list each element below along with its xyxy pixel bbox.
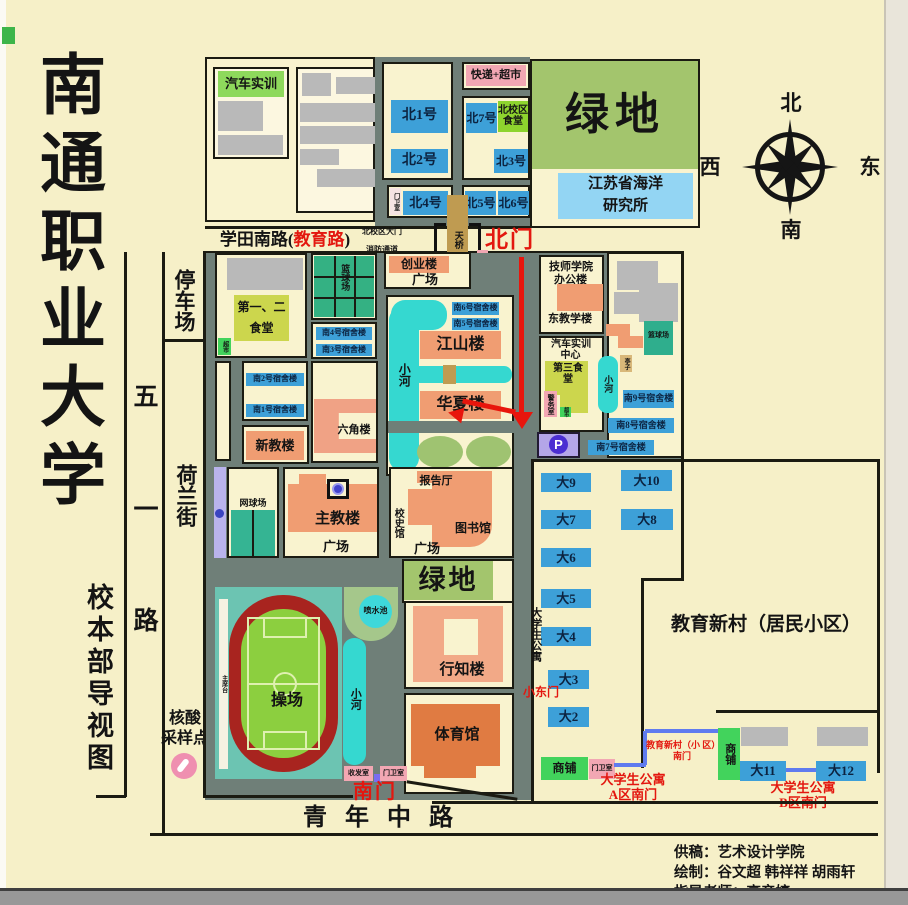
hexagon-label: 六角楼 xyxy=(333,424,375,438)
screenshot-edge-chip xyxy=(2,27,15,44)
gate-path xyxy=(645,729,719,733)
dorm-south-5: 南5号宿舍楼 xyxy=(452,318,499,330)
compass-north-label: 北 xyxy=(778,92,804,116)
apartment-d12: 大12 xyxy=(816,761,866,781)
canteen-1-2-label: 食堂 xyxy=(234,319,289,337)
covid-test-icon xyxy=(171,753,197,779)
apartment-d11: 大11 xyxy=(740,761,786,781)
gate-path xyxy=(785,768,818,772)
compass-icon xyxy=(744,121,836,213)
report-hall-label: 报告厅 xyxy=(414,476,458,488)
boundary xyxy=(681,251,684,581)
east-teaching-label: 东教学楼 xyxy=(543,313,597,326)
xincun-gate-text: 教育新村（小 区） xyxy=(646,740,718,751)
mail-room-label: 收发室 xyxy=(344,766,373,781)
north-gate-label: 北门 xyxy=(484,227,536,253)
dorm-south-7: 南7号宿舍楼 xyxy=(588,440,654,455)
canteen-3-label: 第三食堂 xyxy=(550,369,586,380)
boundary xyxy=(534,459,880,462)
school-name-calligraphy: 南通职业大学 xyxy=(26,50,114,570)
xuetian-road-text: 学田南路( xyxy=(220,231,294,249)
a-gate-label: 大学生公寓 A区南门 xyxy=(598,772,668,802)
parking-sign: P xyxy=(537,432,580,458)
xincun-gate-label: 教育新村（小 区） 南门 xyxy=(646,740,718,762)
gym-label: 体育馆 xyxy=(433,728,481,743)
apartment-d4: 大4 xyxy=(541,627,591,646)
pavilion-label: 亭子 xyxy=(620,355,632,372)
apartment-d6: 大6 xyxy=(541,548,591,567)
landmark-icon xyxy=(327,479,349,499)
building-footprint xyxy=(300,103,375,122)
boundary xyxy=(877,459,880,713)
divider xyxy=(96,795,126,798)
guard-room-label: 门卫室 xyxy=(390,188,401,215)
basketball-court-west-label: 篮球场 xyxy=(338,258,351,296)
campus-border xyxy=(205,795,353,798)
police-room-label: 警务室 xyxy=(544,391,557,417)
tennis-label: 网球场 xyxy=(233,498,273,509)
dorm-south-4: 南4号宿舍楼 xyxy=(316,327,372,340)
dorm-north-3: 北3号 xyxy=(494,149,528,173)
divider xyxy=(124,252,127,797)
tech-office-building xyxy=(557,284,603,311)
dorm-south-8: 南8号宿舍楼 xyxy=(608,418,674,433)
xincun-gate-text: 南门 xyxy=(646,751,718,762)
dorm-south-1: 南1号宿舍楼 xyxy=(246,404,304,417)
dorm-south-2: 南2号宿舍楼 xyxy=(246,373,304,386)
auto-training-label: 汽车实训 xyxy=(218,71,284,97)
parking-lot-label: 停车场 xyxy=(168,258,200,342)
wuyi-road-char: 路 xyxy=(132,608,160,636)
compass-west-label: 西 xyxy=(697,156,723,180)
helan-street-label: 荷兰街 xyxy=(170,437,202,553)
supermarket-label: 超市 xyxy=(560,407,571,417)
xuetian-road-label: 学田南路(教育路) xyxy=(206,229,364,251)
dot-icon xyxy=(215,509,224,518)
building-footprint xyxy=(606,324,630,336)
qingnian-road-label: 青年中路 xyxy=(292,806,482,832)
community-label: 教育新村（居民小区） xyxy=(668,612,864,638)
stage-label: 主席台 xyxy=(219,668,228,700)
b-gate-label: 大学生公寓 B区南门 xyxy=(766,780,840,810)
inner-road xyxy=(388,421,514,433)
building-footprint xyxy=(300,149,339,165)
apartment-d10: 大10 xyxy=(621,470,672,491)
road-line xyxy=(150,833,878,836)
small-east-gate-label: 小东门 xyxy=(520,686,562,699)
new-teaching-building: 新教楼 xyxy=(246,431,304,460)
dorm-south-6: 南6号宿舍楼 xyxy=(452,302,499,315)
a-gate-text: 大学生公寓 xyxy=(598,772,668,787)
express-supermarket-label: 快递+超市 xyxy=(466,65,526,86)
green-space-south: 绿地 xyxy=(404,561,493,600)
boundary xyxy=(716,710,880,713)
gym-building xyxy=(424,766,476,778)
a-gate-text: A区南门 xyxy=(598,787,668,802)
south-gate-label: 南门 xyxy=(352,781,398,803)
guard-room-label: 门卫室 xyxy=(380,766,407,781)
tennis-court xyxy=(231,510,275,556)
canteen-1-2-label: 第一、二 xyxy=(234,295,289,319)
campus-border xyxy=(203,251,206,798)
compass-east-label: 东 xyxy=(857,156,883,180)
green-space-north: 绿地 xyxy=(532,61,698,169)
dorm-north-4: 北4号 xyxy=(403,191,448,215)
plaza-label: 广场 xyxy=(408,542,446,555)
boundary xyxy=(643,578,683,581)
supermarket-label: 超市 xyxy=(218,338,231,355)
building-footprint xyxy=(817,727,868,746)
apartment-d7: 大7 xyxy=(541,510,591,529)
building-footprint xyxy=(614,292,641,314)
marine-institute-label: 江苏省海洋 xyxy=(558,173,693,197)
gate-path xyxy=(614,763,646,767)
building-footprint xyxy=(227,258,303,290)
dorm-north-1: 北1号 xyxy=(391,100,448,133)
lavender-strip xyxy=(214,467,226,558)
screenshot-edge xyxy=(0,888,908,905)
marine-institute-label: 研究所 xyxy=(558,197,693,217)
credits-line: 绘制：谷文超 韩祥祥 胡雨轩 xyxy=(674,863,888,883)
river-label: 小河 xyxy=(396,356,412,394)
building-footprint xyxy=(302,73,331,96)
building-footprint xyxy=(618,336,643,348)
wuyi-road-char: 五 xyxy=(132,384,160,412)
wuyi-road-char: 一 xyxy=(132,497,160,525)
apartment-d2: 大2 xyxy=(548,707,589,727)
apartment-d5: 大5 xyxy=(541,589,591,608)
b-gate-text: 大学生公寓 xyxy=(766,780,840,795)
jiangshan-building: 江山楼 xyxy=(420,331,501,359)
tech-office-label: 技师学院 xyxy=(545,261,597,275)
fountain: 喷水池 xyxy=(359,595,392,628)
history-hall-label: 校史馆 xyxy=(390,503,404,543)
shop-a: 商铺 xyxy=(541,757,588,780)
small-bridge xyxy=(443,365,456,384)
river xyxy=(412,366,512,383)
screenshot-edge xyxy=(0,0,6,888)
playground-label: 操场 xyxy=(263,692,311,710)
shop-b: 商铺 xyxy=(718,728,740,780)
river-label: 小河 xyxy=(600,368,615,400)
route-arrow-down-icon xyxy=(519,257,524,414)
apartment-d8: 大8 xyxy=(621,509,673,530)
apartment-d9: 大9 xyxy=(541,473,591,492)
library-label: 图书馆 xyxy=(451,522,495,535)
dorm-north-6: 北6号 xyxy=(498,191,529,215)
chuangye-building: 创业楼 xyxy=(389,256,449,273)
campus-map: 南通职业大学 校本部导视图 五 一 路 停车场 荷兰街 核酸 采样点 汽车实训 … xyxy=(0,0,908,905)
road-line xyxy=(432,801,878,804)
student-apartment-road-label: 大学生公寓 xyxy=(527,602,543,666)
screenshot-edge xyxy=(884,0,908,888)
dorm-south-3: 南3号宿舍楼 xyxy=(316,344,372,356)
canteen-1-2: 第一、二 食堂 xyxy=(234,295,289,341)
compass-south-label: 南 xyxy=(778,219,804,243)
building-footprint xyxy=(218,135,283,155)
parking-p-icon: P xyxy=(549,435,568,454)
library-building xyxy=(408,489,435,525)
marine-institute: 江苏省海洋 研究所 xyxy=(558,173,693,219)
xingzhi-label: 行知楼 xyxy=(436,663,488,678)
building-footprint xyxy=(300,126,375,144)
divider xyxy=(163,339,205,342)
xingzhi-courtyard xyxy=(444,619,478,655)
xuetian-road-red: 教育路 xyxy=(294,231,345,249)
basketball-court-east-label: 篮球场 xyxy=(645,331,672,340)
north-campus-gate-label: 北校区大门 xyxy=(360,228,404,237)
strip-block xyxy=(215,361,231,461)
building-footprint xyxy=(336,77,375,94)
plaza-label: 广场 xyxy=(315,540,357,554)
dorm-north-7: 北7号 xyxy=(466,103,497,133)
main-building xyxy=(299,474,326,488)
building-footprint xyxy=(741,727,788,746)
map-title: 校本部导视图 xyxy=(82,583,118,798)
lawn-circle xyxy=(417,436,463,468)
dorm-north-5: 北5号 xyxy=(465,191,496,215)
boundary xyxy=(877,710,880,773)
plaza-label: 广场 xyxy=(404,273,446,287)
dorm-south-9: 南9号宿舍楼 xyxy=(623,390,674,408)
soccer-field xyxy=(247,617,320,750)
river-label: 小河 xyxy=(346,678,363,720)
credits-line: 供稿：艺术设计学院 xyxy=(674,843,888,863)
xuetian-road-text: ) xyxy=(345,231,351,249)
dorm-north-2: 北2号 xyxy=(391,149,448,173)
building-footprint xyxy=(317,169,375,187)
lawn-circle xyxy=(466,436,511,468)
building-footprint xyxy=(639,283,678,322)
main-building-label: 主教楼 xyxy=(314,512,361,527)
north-canteen-label: 北校区食堂 xyxy=(498,101,528,132)
building-footprint xyxy=(218,101,263,131)
